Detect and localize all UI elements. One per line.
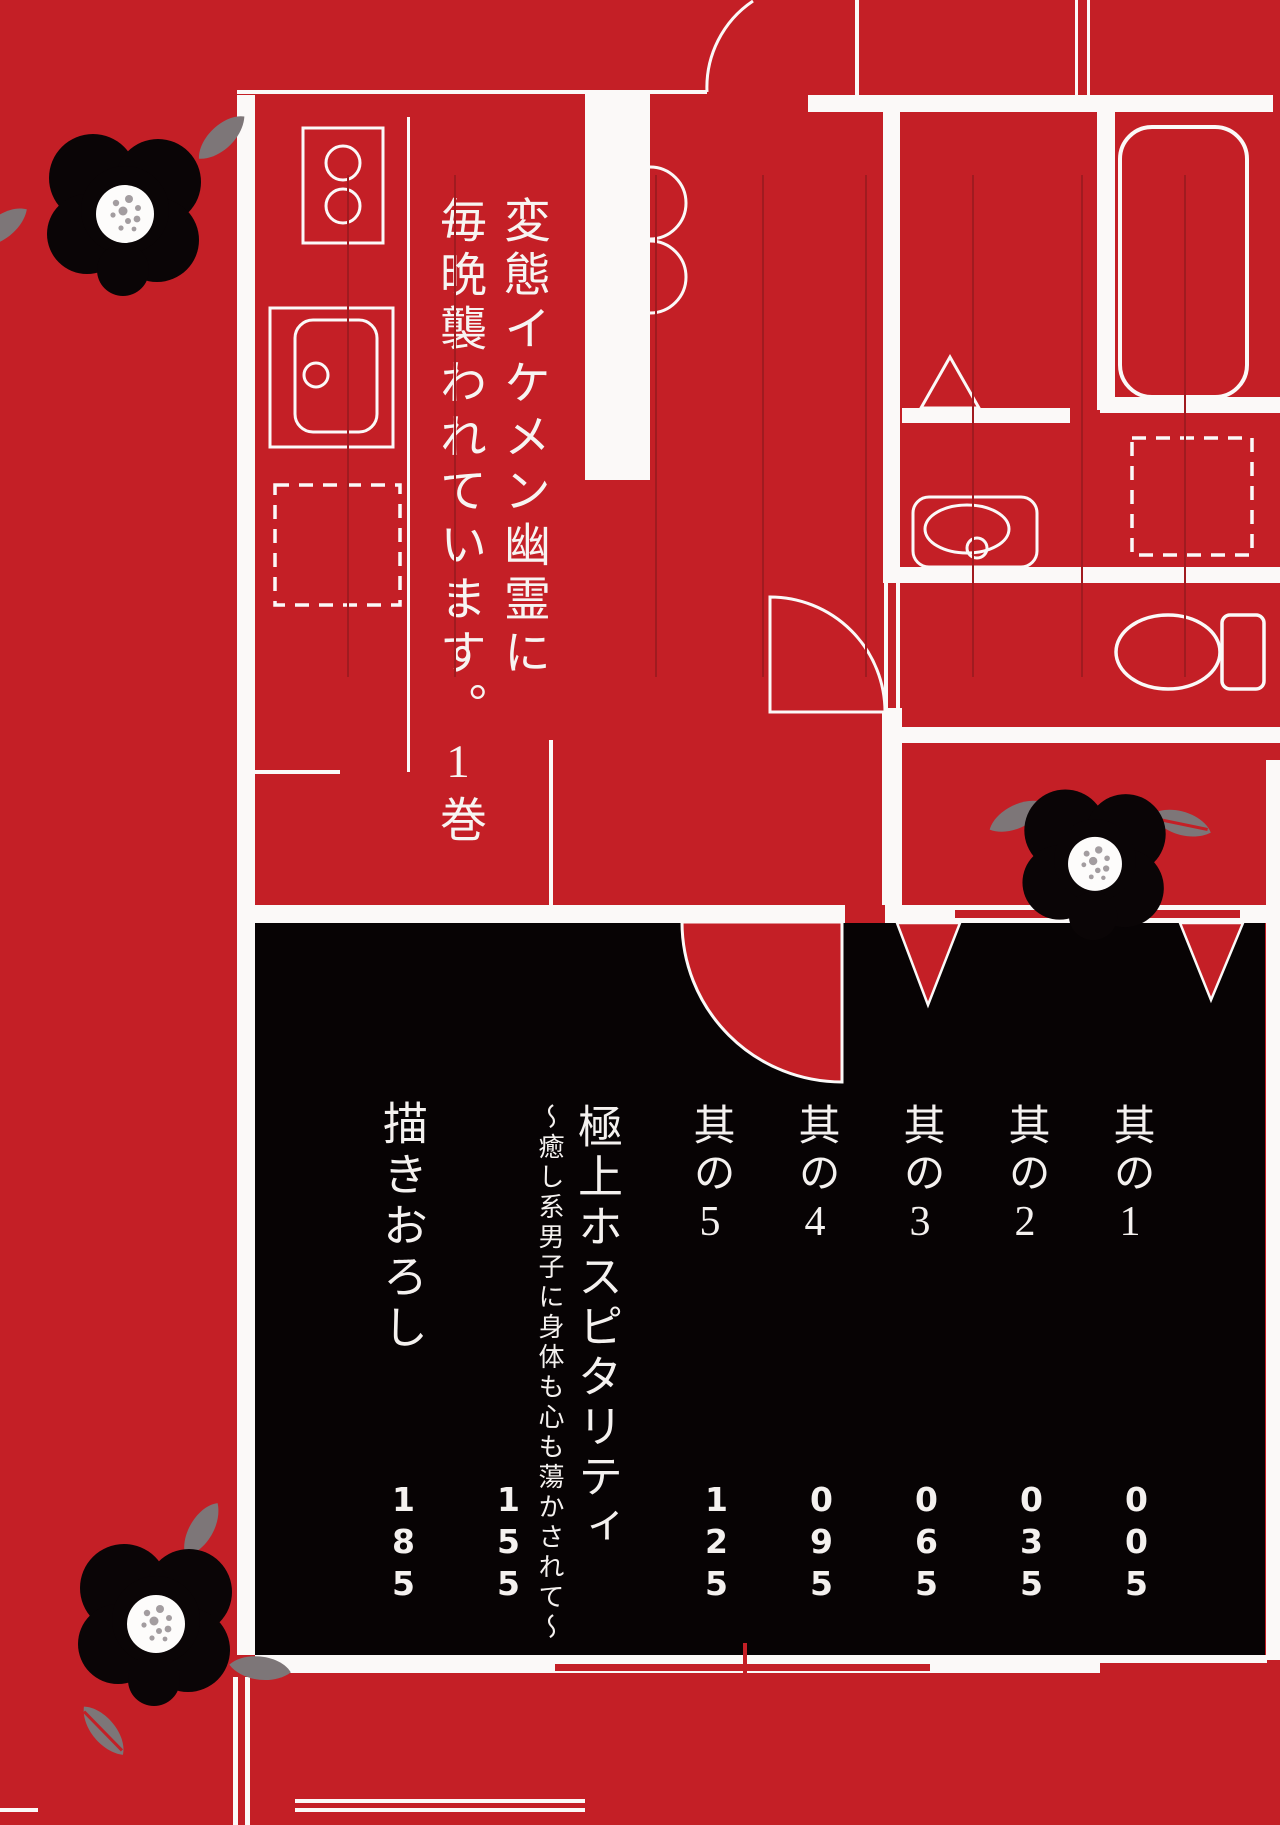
chapter-label: 描きおろし (376, 1100, 426, 1355)
toc-entry-chapter-5: 其の5 (686, 1103, 734, 1251)
toc-entry-extra: 描きおろし (377, 1100, 425, 1355)
toc-rule (865, 175, 867, 677)
page-number: 035 (1013, 1480, 1049, 1606)
toc-entry-hospitality: 極上ホスピタリティ ～癒し系男子に身体も心も蕩かされて～ (528, 1103, 622, 1643)
toc-rule (762, 175, 764, 677)
page-number: 155 (490, 1480, 526, 1606)
book-title: 変態イケメン幽霊に 毎晩襲われています。1巻 (424, 196, 554, 849)
toc-entry-chapter-4: 其の4 (791, 1103, 839, 1251)
page-number: 125 (698, 1480, 734, 1606)
toc-rule (347, 175, 349, 677)
page-number: 185 (385, 1480, 421, 1606)
toc-rule (972, 175, 974, 677)
book-title-line2: 毎晩襲われています。1巻 (426, 196, 490, 849)
toc-entry-chapter-2: 其の2 (1001, 1103, 1049, 1251)
manga-toc-page: 変態イケメン幽霊に 毎晩襲われています。1巻 其の1 其の2 其の3 其の4 其… (0, 0, 1280, 1825)
book-title-line1: 変態イケメン幽霊に (490, 196, 554, 849)
chapter-label: 其の2 (1002, 1103, 1048, 1251)
page-number: 005 (1118, 1480, 1154, 1606)
chapter-label: 極上ホスピタリティ (570, 1103, 622, 1643)
chapter-label: 其の4 (792, 1103, 838, 1251)
toc-rule (655, 175, 657, 677)
chapter-label: 其の3 (897, 1103, 943, 1251)
chapter-label: 其の5 (687, 1103, 733, 1251)
toc-rule (1081, 175, 1083, 677)
toc-rule (1184, 175, 1186, 677)
page-number: 095 (803, 1480, 839, 1606)
page-number: 065 (908, 1480, 944, 1606)
toc-entry-chapter-1: 其の1 (1106, 1103, 1154, 1251)
chapter-label: 其の1 (1107, 1103, 1153, 1251)
toc-entry-chapter-3: 其の3 (896, 1103, 944, 1251)
text-layer: 変態イケメン幽霊に 毎晩襲われています。1巻 其の1 其の2 其の3 其の4 其… (0, 0, 1280, 1825)
toc-rule (454, 175, 456, 677)
chapter-subtitle: ～癒し系男子に身体も心も蕩かされて～ (528, 1103, 570, 1643)
